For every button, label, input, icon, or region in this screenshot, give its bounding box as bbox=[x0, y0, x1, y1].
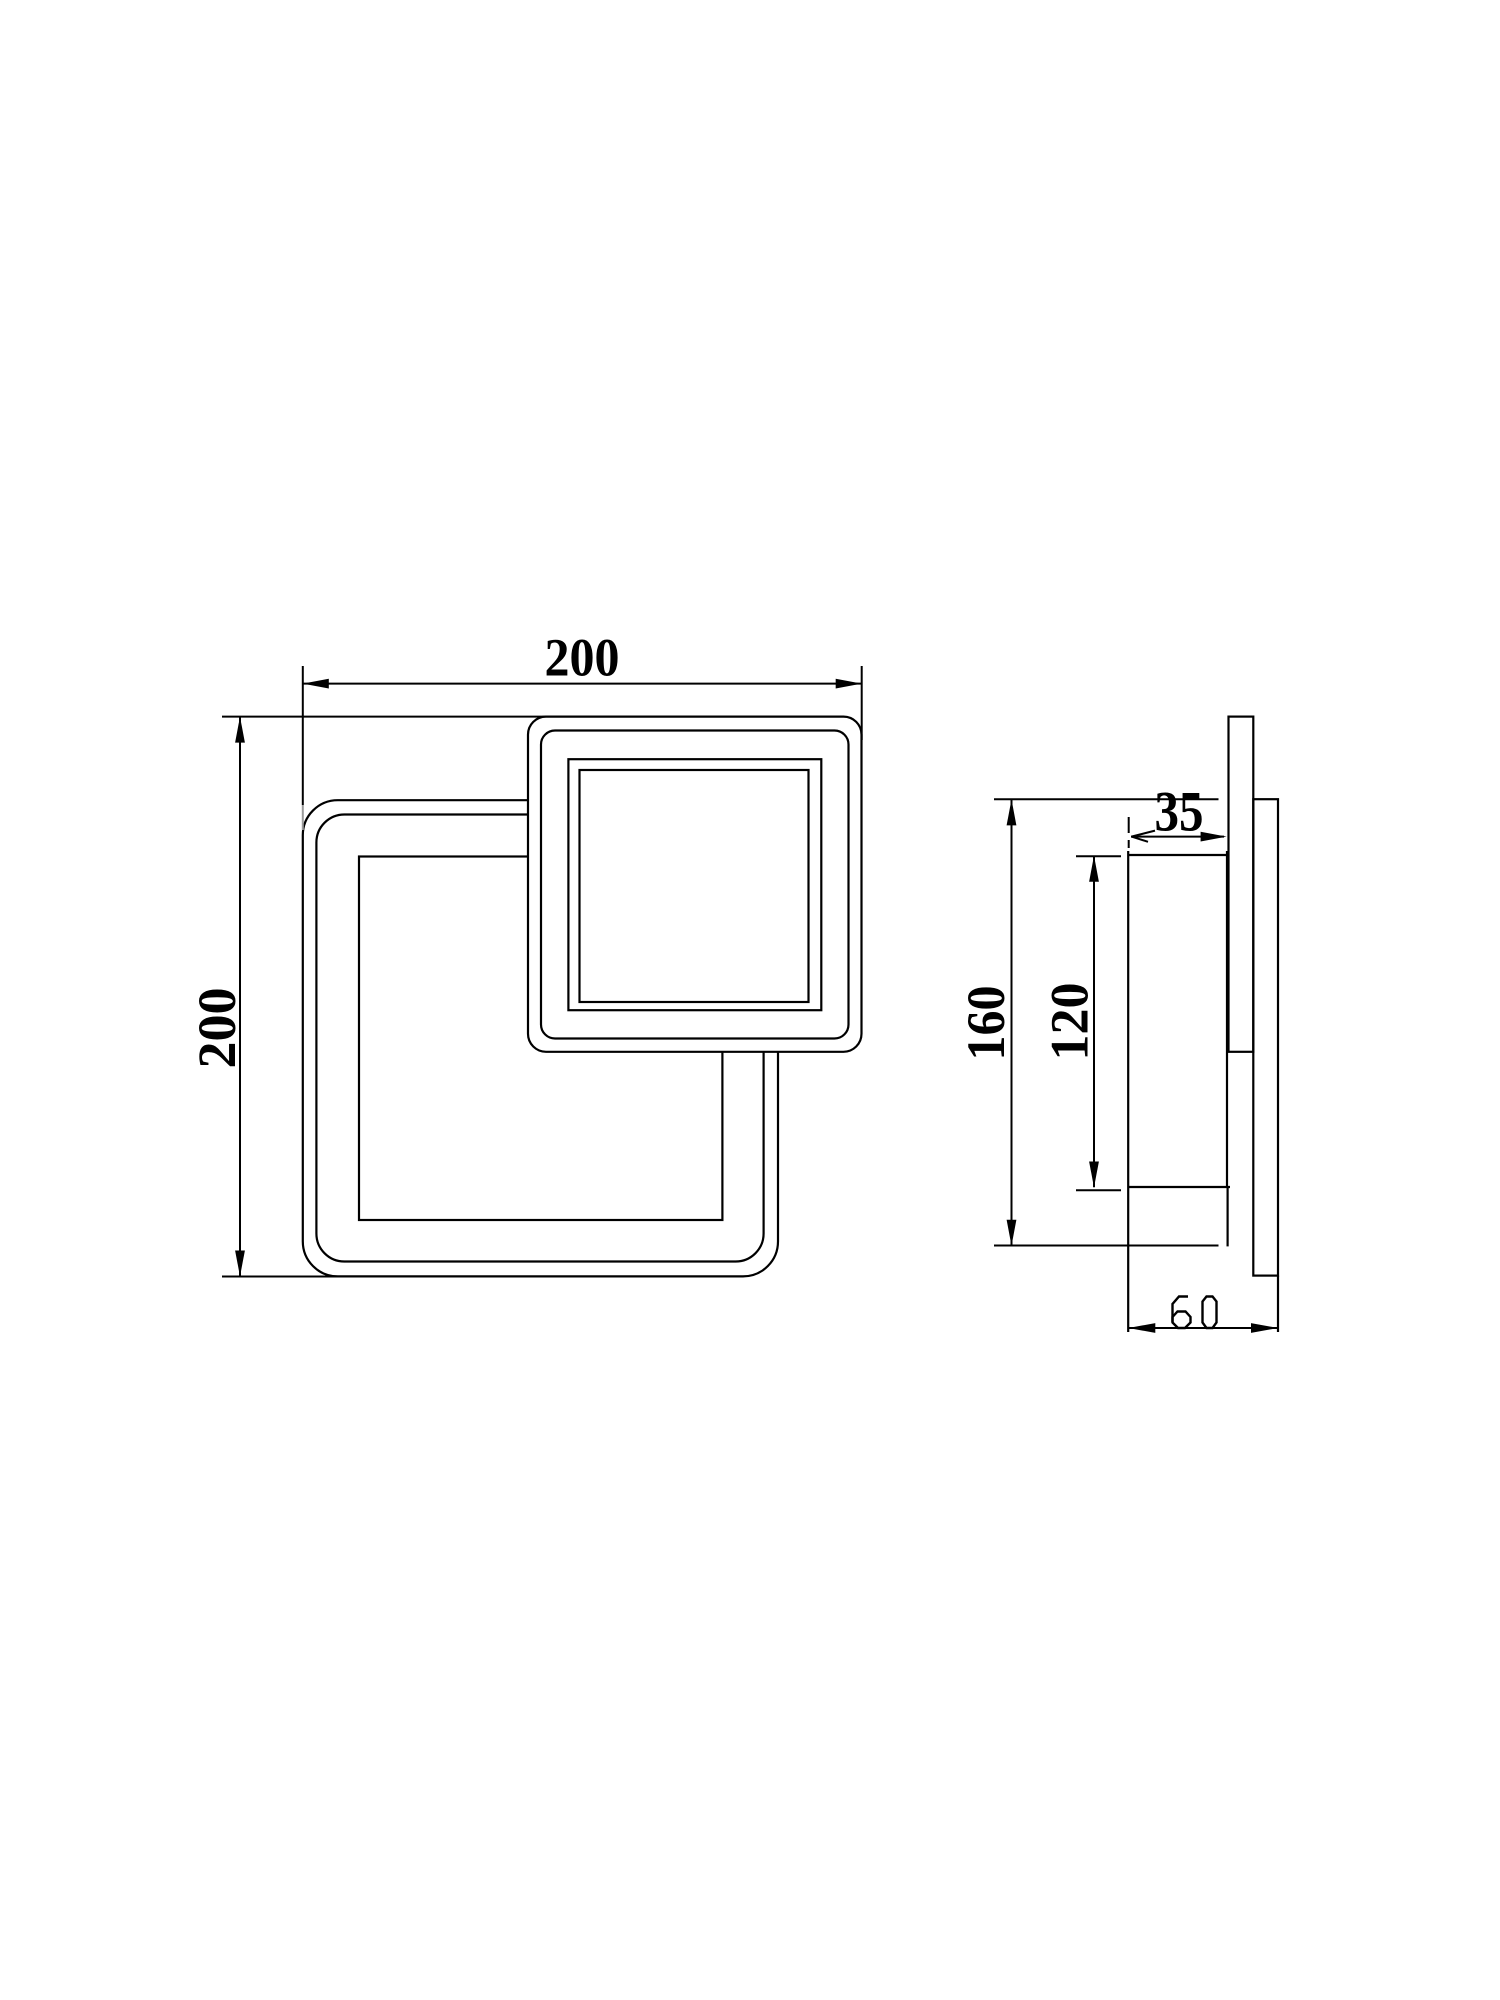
svg-text:120: 120 bbox=[1040, 983, 1100, 1061]
svg-text:200: 200 bbox=[545, 628, 620, 688]
svg-text:200: 200 bbox=[187, 988, 247, 1069]
svg-text:35: 35 bbox=[1155, 781, 1204, 844]
svg-text:160: 160 bbox=[956, 986, 1016, 1061]
